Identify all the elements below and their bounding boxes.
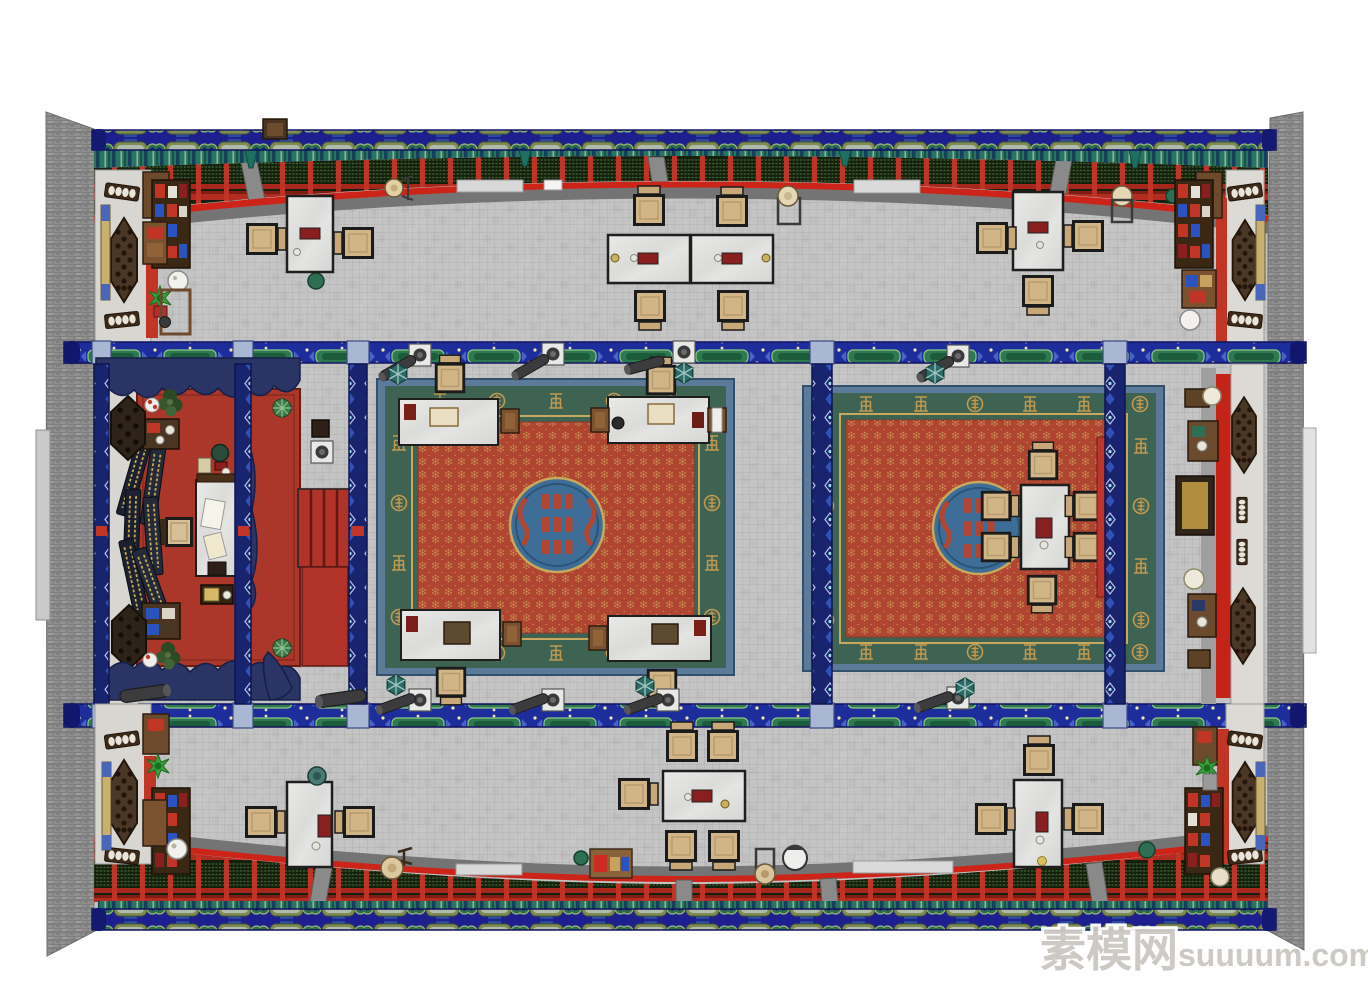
svg-text:suuuum.com: suuuum.com [1178, 937, 1368, 973]
svg-text:素模网: 素模网 [1040, 924, 1178, 976]
